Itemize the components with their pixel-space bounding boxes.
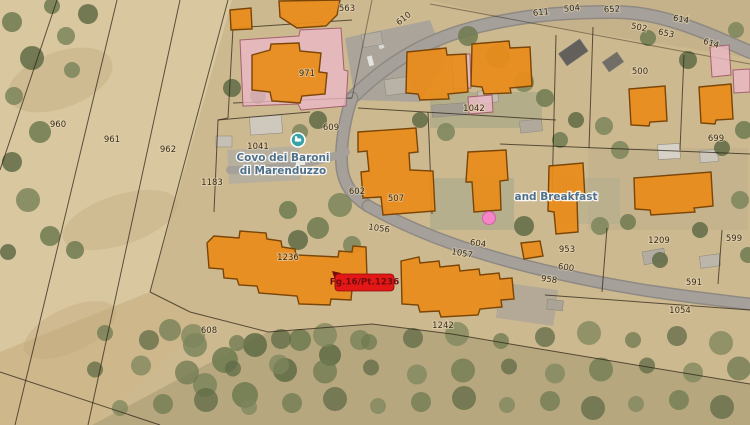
parcel-number: 1041 [247,142,269,152]
parcel-number: 971 [299,69,315,79]
building-ne-1[interactable] [629,86,667,126]
cadastral-satellite-map[interactable]: 9609619621183563610971609104160250710426… [0,0,750,425]
parcel-number: 962 [160,145,176,155]
parcel-number: 1242 [432,321,454,331]
lodging-poi-icon[interactable] [291,133,305,147]
parcel-number: 652 [604,4,621,15]
selected-parcel-marker-text: Fg.16/Pt.1236 [330,278,400,288]
building-1042-east[interactable] [471,41,532,94]
pool-poi-dot [483,212,496,225]
poi-label-lodging-covo[interactable]: di Marenduzzo [240,165,327,177]
parcel-number: 500 [632,67,648,77]
pool-poi-layer [483,212,496,225]
poi-label-lodging-covo[interactable]: Covo dei Baroni [236,152,329,164]
parcel-number: 961 [104,135,120,145]
building-court[interactable] [521,241,543,259]
parcel-number: 960 [50,120,66,130]
map-viewport[interactable]: 9609619621183563610971609104160250710426… [0,0,750,425]
parcel-number: 1054 [669,306,691,316]
parcel-number: 1183 [201,178,223,188]
parcel-number: 699 [708,134,724,144]
parcel-number: 609 [323,123,339,133]
building-ne-2[interactable] [699,84,733,124]
parcel-number: 563 [339,4,355,14]
parcel-number: 504 [563,3,580,15]
parcel-number: 599 [726,234,742,244]
parcel-number: 1209 [648,236,670,246]
parcel-number: 953 [559,245,575,255]
building-footprint-pink[interactable] [733,69,750,93]
building-1042-west[interactable] [406,48,468,100]
parcel-number: 591 [686,278,702,288]
parcel-number: 611 [532,7,549,19]
parcel-number: 1042 [463,104,485,114]
parcel-number: 1236 [277,253,299,263]
poi-label-bed-and-breakfast[interactable]: and Breakfast [514,191,597,203]
selection-marker-layer: Fg.16/Pt.1236 [330,271,400,291]
parcel-number: 608 [201,326,217,336]
parcel-number: 507 [388,194,404,204]
building-north-hut[interactable] [230,8,252,30]
parcel-number: 602 [349,187,365,197]
